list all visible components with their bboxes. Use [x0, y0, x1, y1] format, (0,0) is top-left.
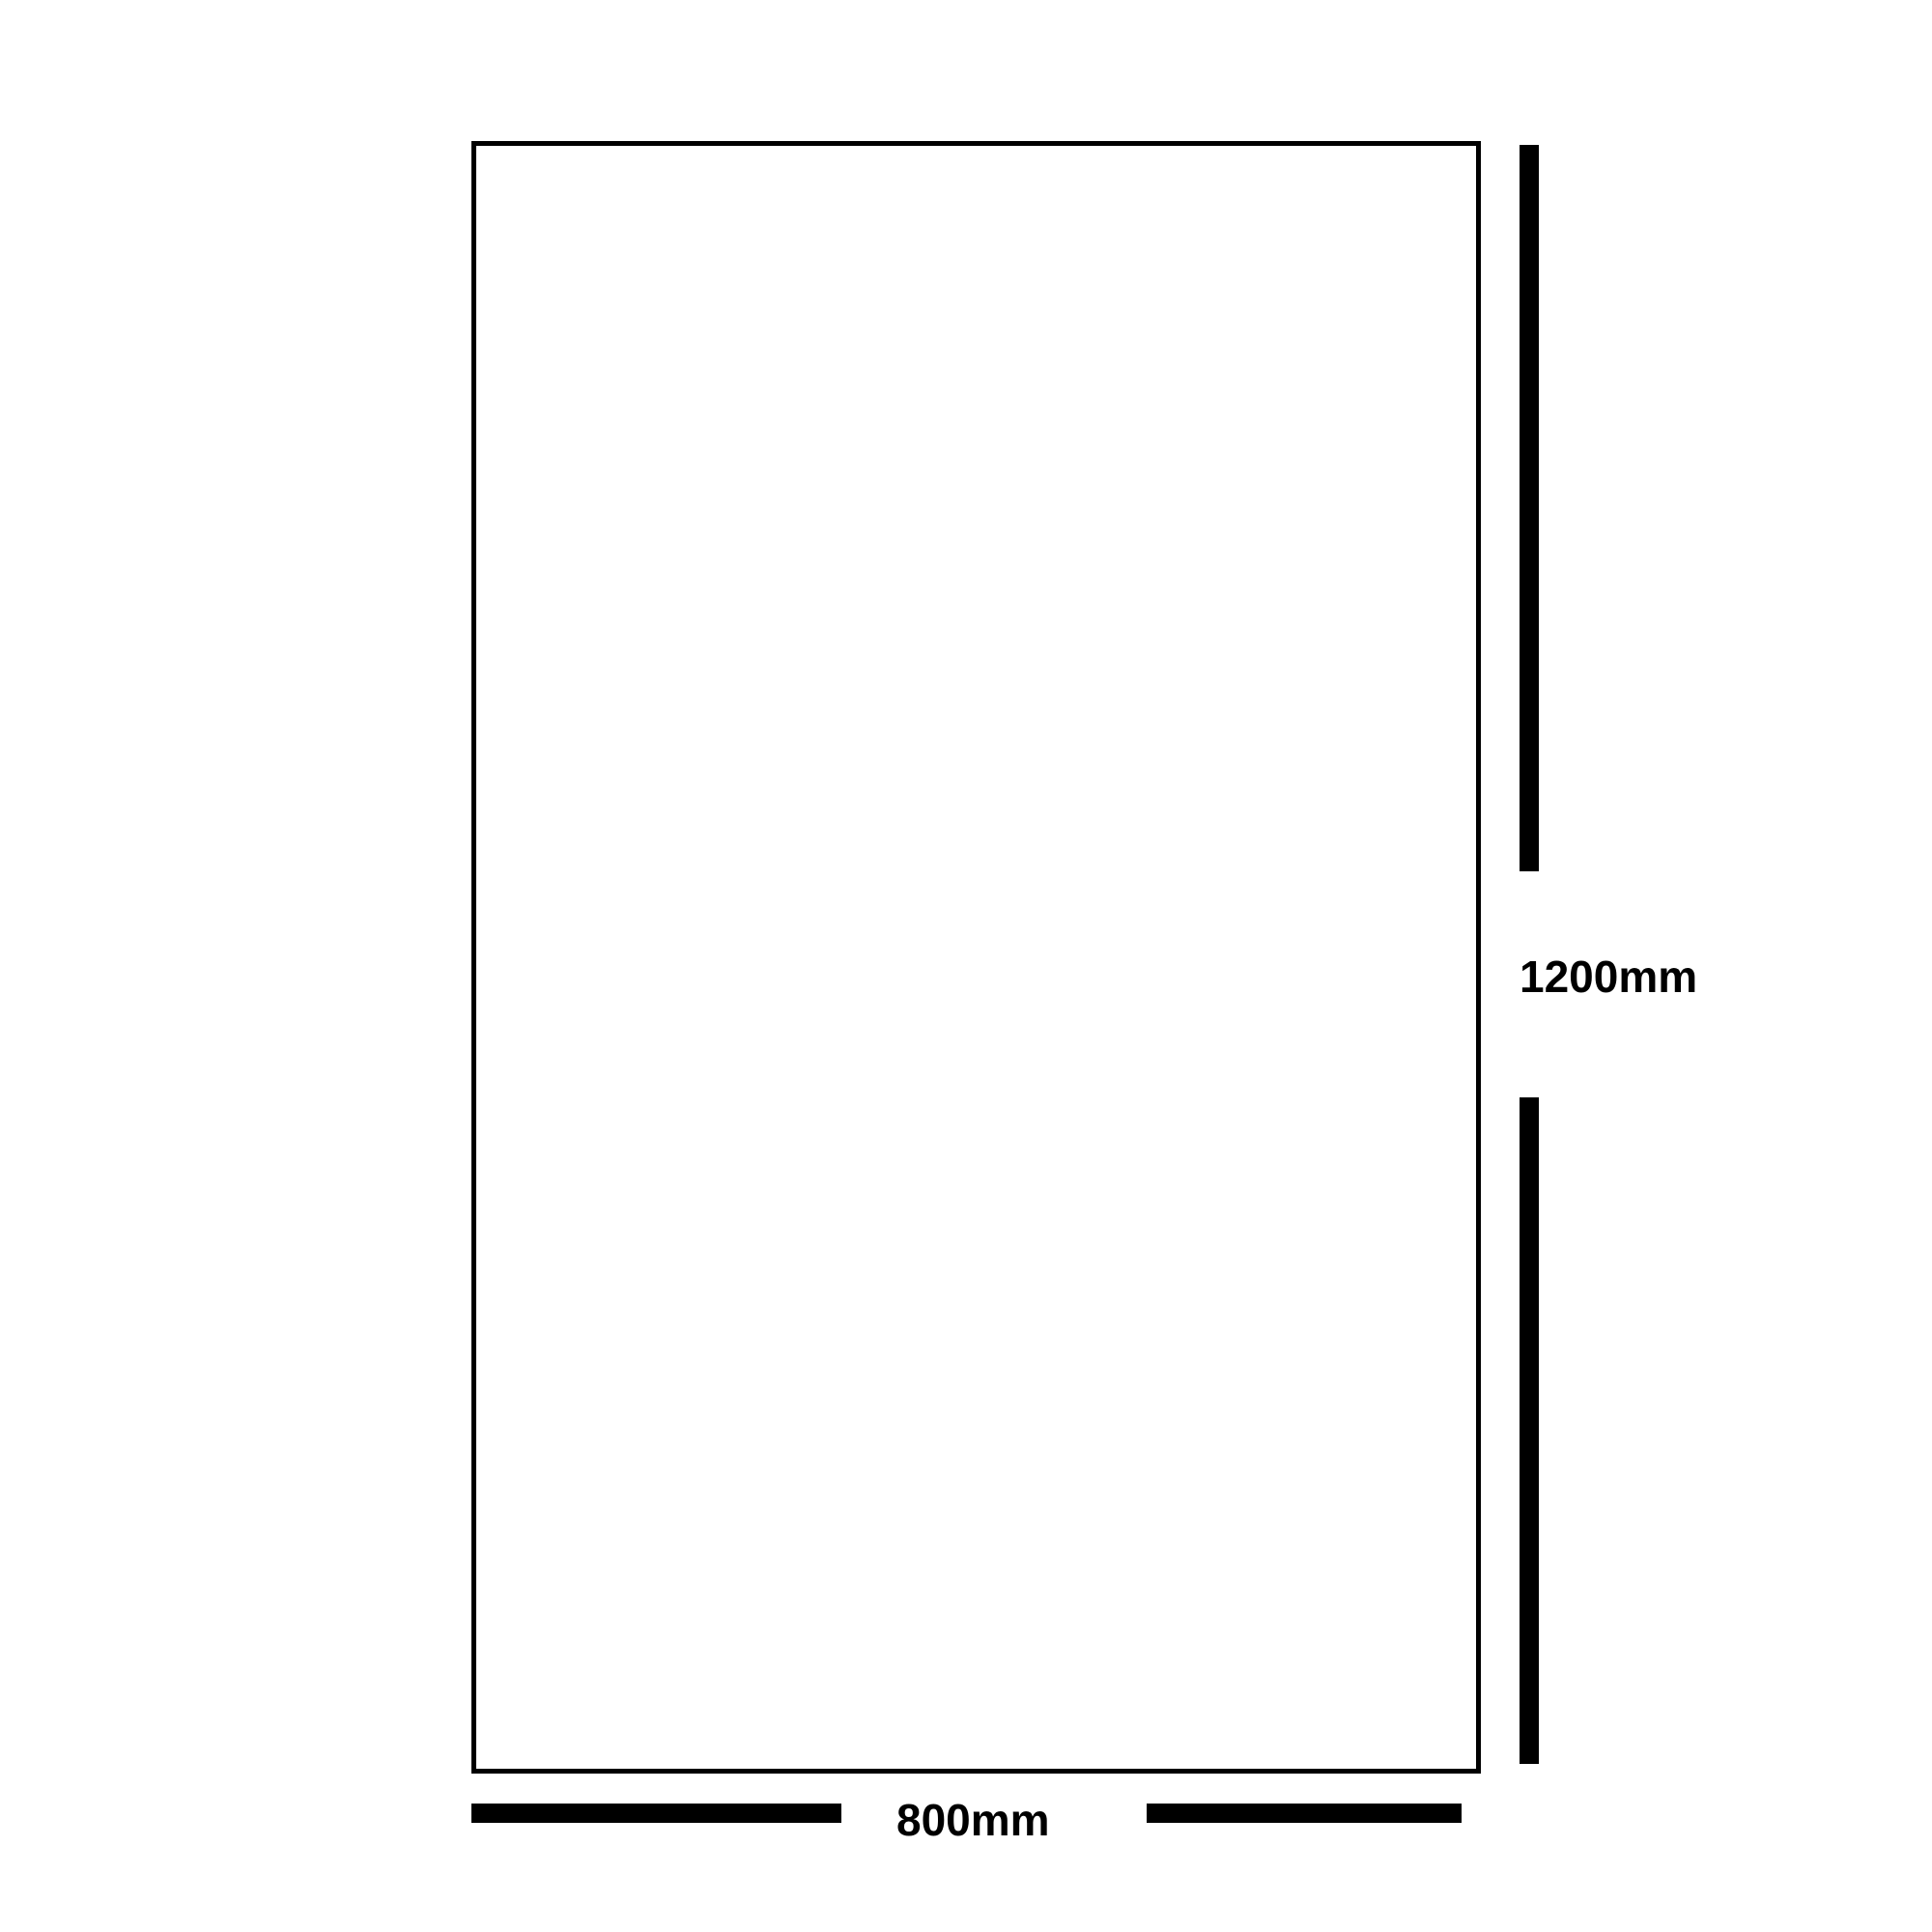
height-dimension-label: 1200mm [1520, 954, 1697, 999]
width-dimension-bar-left [471, 1804, 841, 1823]
height-dimension-bar-upper [1520, 145, 1539, 871]
width-dimension-bar-right [1147, 1804, 1462, 1823]
dimension-diagram: 1200mm 800mm [0, 0, 1932, 1932]
panel-outline [471, 141, 1481, 1774]
height-dimension-bar-lower [1520, 1097, 1539, 1764]
width-dimension-label: 800mm [896, 1798, 1050, 1842]
